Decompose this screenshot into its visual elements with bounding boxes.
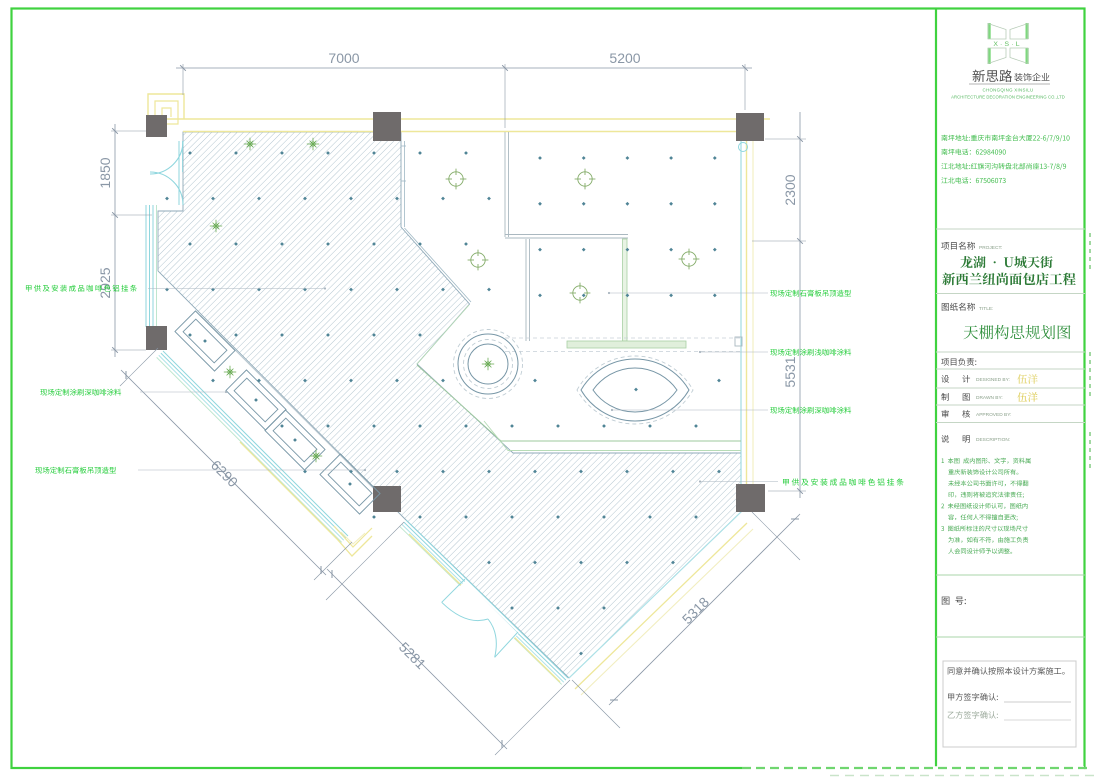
svg-text:CHONGQING XINSILU: CHONGQING XINSILU (983, 88, 1034, 93)
svg-text:APPROVED BY:: APPROVED BY: (976, 412, 1011, 418)
svg-text:DESIGNED BY:: DESIGNED BY: (976, 377, 1010, 383)
svg-text:7000: 7000 (328, 50, 359, 66)
svg-text:TITLE:: TITLE: (979, 306, 993, 312)
svg-text:5531: 5531 (782, 356, 798, 387)
svg-text:1850: 1850 (97, 157, 113, 188)
svg-text:ARCHITECTURE DECORATION ENGINE: ARCHITECTURE DECORATION ENGINEERING CO.,… (951, 95, 1065, 100)
svg-text:X·S·L: X·S·L (993, 41, 1021, 48)
svg-text:PROJECT:: PROJECT: (979, 245, 1002, 251)
svg-text:2300: 2300 (782, 174, 798, 205)
svg-text:DESCRIPTION:: DESCRIPTION: (976, 437, 1010, 443)
svg-text:2925: 2925 (97, 267, 113, 298)
svg-text:DRAWN BY:: DRAWN BY: (976, 395, 1003, 401)
svg-text:5200: 5200 (609, 50, 640, 66)
